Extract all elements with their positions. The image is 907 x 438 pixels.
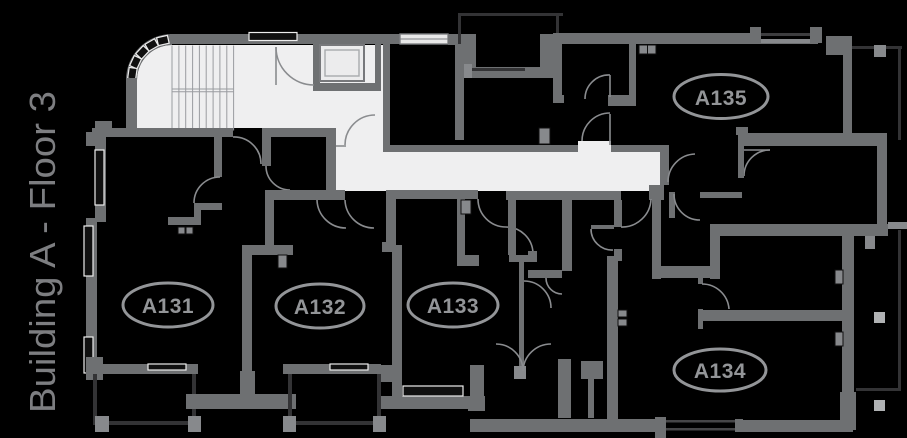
svg-text:A131: A131 <box>142 295 194 318</box>
svg-text:Building A - Floor 3: Building A - Floor 3 <box>22 91 63 413</box>
svg-text:A132: A132 <box>294 296 346 319</box>
svg-text:A133: A133 <box>427 295 479 318</box>
svg-text:A134: A134 <box>694 360 746 383</box>
svg-text:A135: A135 <box>695 87 747 110</box>
